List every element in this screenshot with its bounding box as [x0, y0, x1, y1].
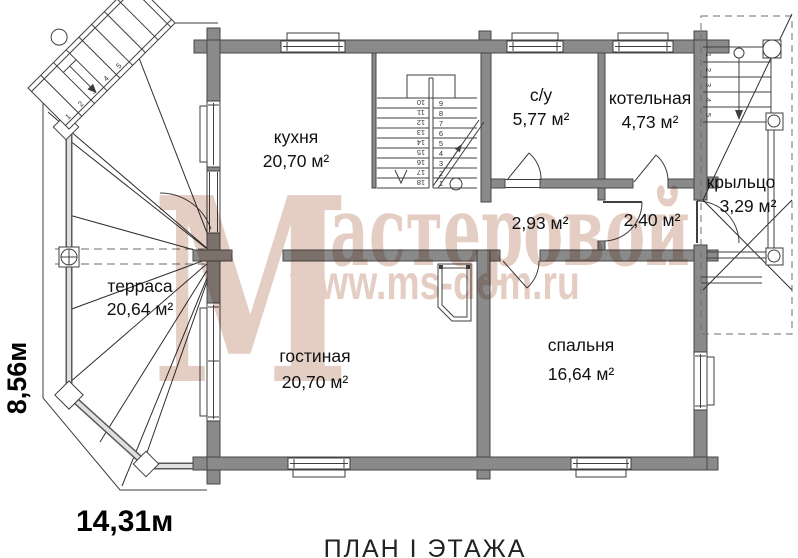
porch-step-number: 2	[704, 68, 713, 72]
door-wc	[505, 153, 541, 188]
porch-steps: 1 2 3 4 5	[703, 47, 771, 122]
step-number: 12	[417, 118, 425, 127]
room-name: котельная	[590, 88, 710, 109]
main-staircase: 9 8 7 6 5 4 3 2 1 10 11 12 13 14 15 16 1…	[377, 75, 484, 190]
step-number: 2	[439, 169, 443, 178]
room-area: 20,64 м²	[60, 299, 220, 320]
room-label-bedroom: спальня 16,64 м²	[501, 335, 661, 385]
room-name: спальня	[501, 335, 661, 356]
step-number: 13	[417, 128, 425, 137]
window	[200, 303, 220, 421]
hall-area-label: 2,93 м²	[480, 213, 600, 234]
terrace-door	[160, 171, 220, 233]
room-name: крыльцо	[681, 172, 798, 193]
room-area: 2,93 м²	[480, 213, 600, 234]
page-title: ПЛАН I ЭТАЖА	[270, 535, 580, 558]
floor-plan-page: 1 2 3 4 5	[0, 0, 798, 558]
step-number: 8	[439, 109, 443, 118]
step-number: 7	[439, 119, 443, 128]
room-name: кухня	[216, 127, 376, 148]
room-label-living: гостиная 20,70 м²	[235, 346, 395, 393]
window	[571, 458, 631, 477]
porch-step-number: 1	[704, 53, 713, 57]
room-label-boiler: котельная 4,73 м²	[590, 88, 710, 133]
door-bedroom	[503, 261, 539, 288]
dimension-width: 14,31м	[76, 505, 173, 539]
room-label-wc: с/у 5,77 м²	[481, 85, 601, 130]
window	[281, 33, 345, 52]
window	[507, 33, 563, 52]
hall-area-label: 2,40 м²	[592, 210, 712, 231]
porch-step-number: 3	[704, 83, 713, 87]
step-number: 6	[439, 129, 443, 138]
step-number: 15	[417, 148, 425, 157]
room-name: с/у	[481, 85, 601, 106]
step-number: 5	[439, 139, 443, 148]
room-name: терраса	[60, 276, 220, 297]
door-boiler	[634, 155, 668, 182]
step-number: 11	[417, 108, 425, 117]
room-area: 20,70 м²	[216, 151, 376, 172]
step-number: 9	[439, 99, 443, 108]
room-area: 20,70 м²	[235, 372, 395, 393]
step-number: 18	[417, 178, 425, 187]
room-area: 4,73 м²	[590, 112, 710, 133]
porch-posts	[763, 40, 783, 265]
step-number: 14	[417, 138, 425, 147]
room-area: 5,77 м²	[481, 109, 601, 130]
step-number: 3	[439, 159, 443, 168]
terrace-staircase: 1 2 3 4 5	[12, 0, 175, 129]
room-name: гостиная	[235, 346, 395, 367]
room-label-kitchen: кухня 20,70 м²	[216, 127, 376, 172]
step-number: 1	[439, 179, 443, 188]
room-label-terrace: терраса 20,64 м²	[60, 276, 220, 320]
window	[288, 458, 350, 477]
terrace-post	[59, 247, 79, 267]
step-number: 4	[439, 149, 443, 158]
room-area: 2,40 м²	[592, 210, 712, 231]
dimension-height: 8,56м	[2, 323, 32, 433]
step-number: 17	[417, 168, 425, 177]
window	[694, 352, 714, 410]
step-number: 10	[417, 98, 425, 107]
step-number: 16	[417, 158, 425, 167]
room-area: 16,64 м²	[501, 364, 661, 385]
window	[613, 33, 673, 52]
fireplace	[438, 264, 471, 321]
